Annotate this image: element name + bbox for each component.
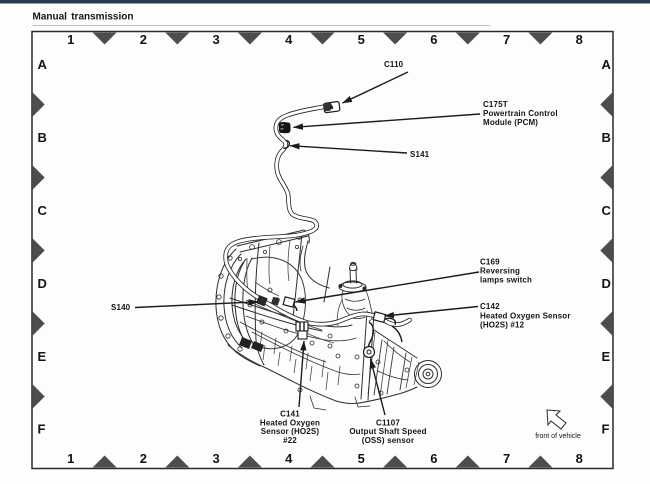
- svg-text:(OSS) sensor: (OSS) sensor: [362, 436, 414, 445]
- svg-text:S140: S140: [111, 303, 131, 312]
- svg-text:C169: C169: [480, 258, 500, 267]
- svg-text:2: 2: [140, 32, 147, 47]
- svg-text:#22: #22: [283, 436, 297, 445]
- svg-text:4: 4: [285, 32, 293, 47]
- svg-text:Manual transmission: Manual transmission: [33, 12, 134, 23]
- svg-text:Module (PCM): Module (PCM): [483, 118, 538, 127]
- svg-text:F: F: [602, 422, 610, 437]
- svg-text:Powertrain Control: Powertrain Control: [483, 109, 558, 118]
- svg-text:C: C: [38, 203, 48, 218]
- svg-text:(HO2S) #12: (HO2S) #12: [480, 321, 525, 330]
- svg-text:B: B: [602, 130, 611, 145]
- svg-text:6: 6: [430, 451, 437, 466]
- svg-text:E: E: [602, 349, 611, 364]
- svg-text:A: A: [38, 57, 48, 72]
- svg-text:6: 6: [430, 32, 437, 47]
- svg-text:1: 1: [67, 451, 74, 466]
- svg-text:Reversing: Reversing: [480, 267, 520, 276]
- svg-text:B: B: [38, 130, 47, 145]
- svg-text:4: 4: [285, 451, 293, 466]
- svg-text:7: 7: [503, 32, 510, 47]
- svg-text:3: 3: [212, 32, 219, 47]
- svg-text:7: 7: [503, 451, 510, 466]
- svg-text:C: C: [602, 203, 612, 218]
- svg-text:C110: C110: [384, 60, 404, 69]
- svg-text:5: 5: [358, 451, 365, 466]
- svg-text:D: D: [602, 276, 611, 291]
- svg-text:E: E: [38, 349, 47, 364]
- svg-text:8: 8: [576, 451, 583, 466]
- svg-text:C175T: C175T: [483, 100, 508, 109]
- svg-text:5: 5: [358, 32, 365, 47]
- svg-text:F: F: [38, 422, 46, 437]
- svg-text:Sensor (HO2S): Sensor (HO2S): [261, 427, 320, 436]
- svg-text:3: 3: [212, 451, 219, 466]
- svg-text:D: D: [38, 276, 47, 291]
- svg-text:C142: C142: [480, 302, 500, 311]
- svg-text:A: A: [602, 57, 612, 72]
- svg-text:S141: S141: [410, 150, 430, 159]
- svg-text:1: 1: [67, 32, 74, 47]
- svg-text:Output Shaft Speed: Output Shaft Speed: [349, 427, 426, 436]
- svg-text:front of vehicle: front of vehicle: [535, 433, 581, 440]
- svg-text:2: 2: [140, 451, 147, 466]
- svg-text:Heated Oxygen Sensor: Heated Oxygen Sensor: [480, 312, 571, 321]
- svg-text:C141: C141: [280, 410, 300, 419]
- svg-text:8: 8: [576, 32, 583, 47]
- svg-text:lamps switch: lamps switch: [480, 276, 532, 285]
